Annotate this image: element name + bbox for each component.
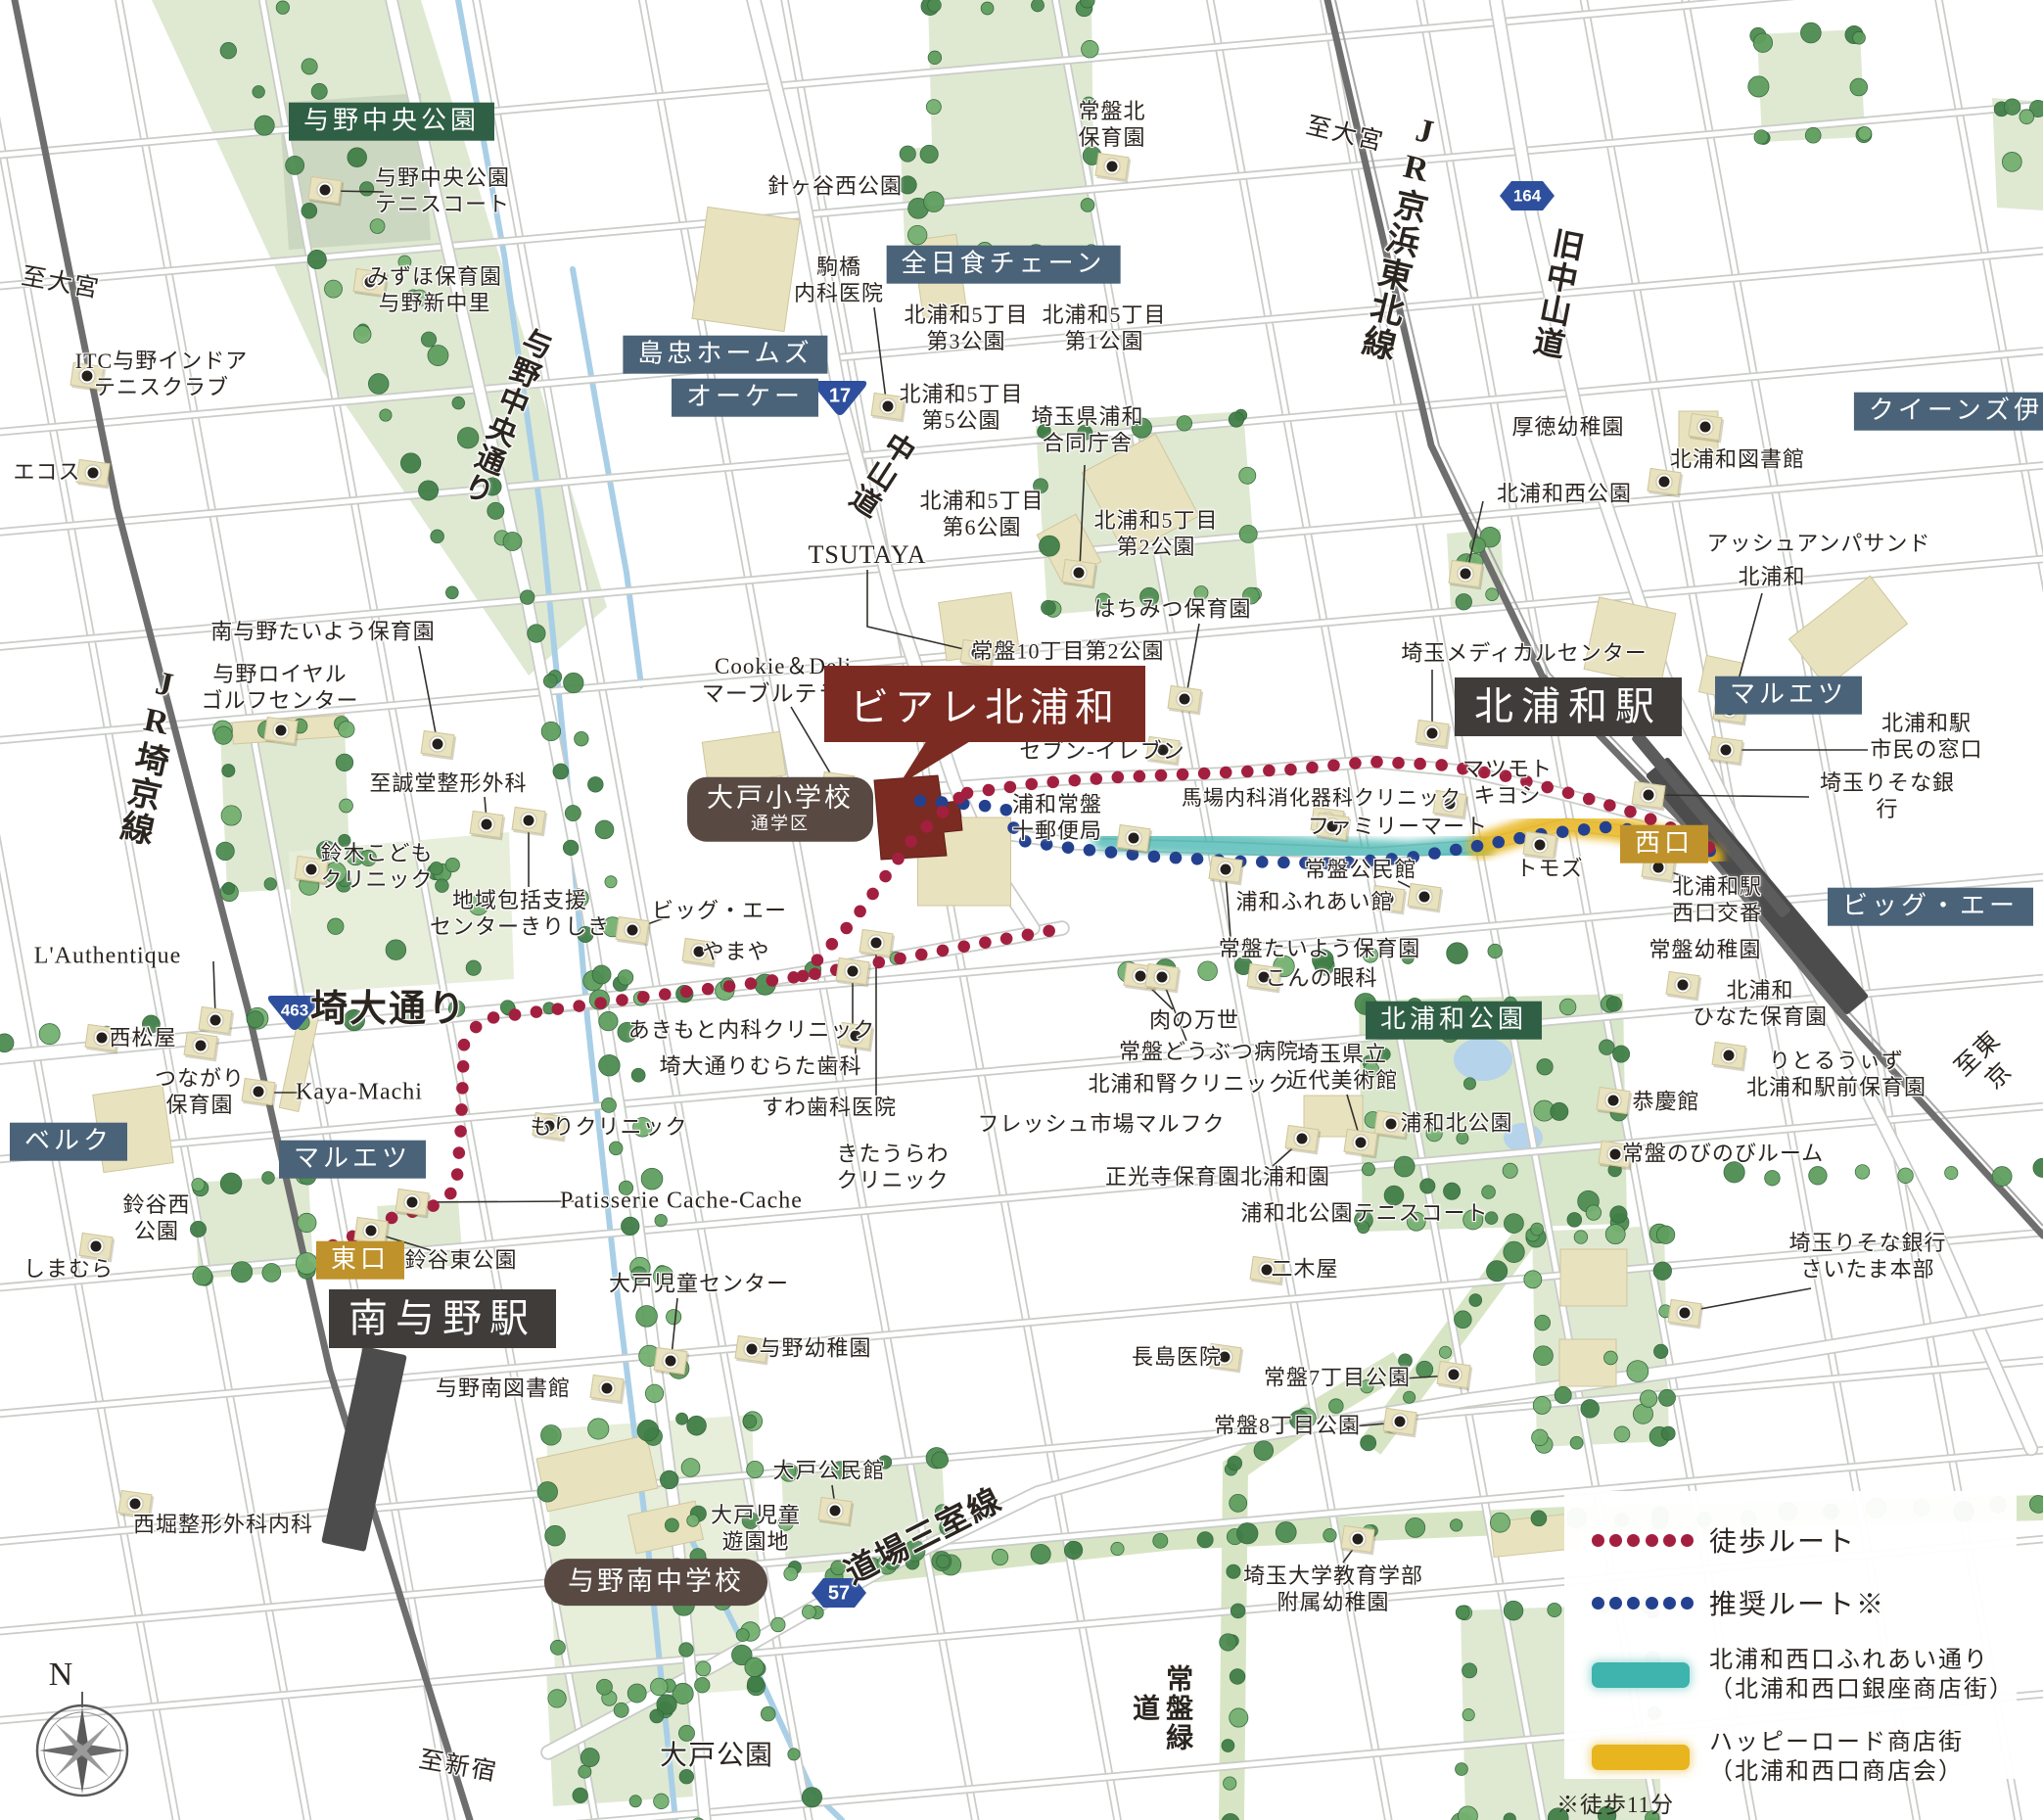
legend-box: 徒歩ルート 推奨ルート※ 北浦和西口ふれあい通り （北浦和西口銀座商店街） ハッ… [1564,1491,2017,1779]
walk-time-note: ※徒歩11分 [1556,1786,1674,1819]
map-label: 埼玉りそな銀行 [1810,770,1966,823]
map-label: はちみつ保育園 [1093,597,1251,624]
recommended-route-sample [1592,1597,1694,1610]
map-label: マツモト キヨシ [1463,757,1553,810]
map-label: 肉の万世 [1149,1008,1239,1035]
road-name-label: 与野中央通り [452,321,556,509]
map-label: 北浦和駅 市民の窓口 [1870,711,1982,764]
map-label: 北浦和腎クリニック [1088,1072,1290,1098]
direction-sign: 至大宮 [19,262,102,305]
road-name-label: 埼大通り [310,987,467,1032]
map-label: 大戸児童 遊園地 [711,1503,801,1556]
map-badge: 全日食チェーン [887,246,1121,284]
map-label: 北浦和5丁目 第6公園 [919,489,1044,541]
map-label: こんの眼科 [1265,966,1377,993]
direction-sign: 至東京 [1949,1025,2029,1105]
map-label: 常盤北 保育園 [1078,99,1145,152]
legend-happyroad-row: ハッピーロード商店街 （北浦和西口商店会） [1592,1728,2017,1787]
map-label: 二木屋 [1271,1257,1338,1283]
map-label: 地域包括支援 センターきりしき [430,888,610,941]
legend-fureai-row: 北浦和西口ふれあい通り （北浦和西口銀座商店街） [1592,1646,2017,1704]
map-label: しまむら [23,1257,114,1283]
legend-fureai-label: 北浦和西口ふれあい通り （北浦和西口銀座商店街） [1709,1646,2015,1704]
map-label: 浦和北公園 [1400,1111,1512,1138]
map-badge: 与野中央公園 [289,103,494,141]
map-label: 埼大通りむらた歯科 [659,1054,861,1081]
map-label: 鈴谷東公園 [404,1248,517,1275]
map-label: 厚徳幼稚園 [1511,415,1624,442]
map-label: 北浦和5丁目 第1公園 [1042,303,1166,355]
map-label: 常盤どうぶつ病院 [1119,1040,1299,1066]
map-label: 埼玉大学教育学部 附属幼稚園 [1243,1563,1423,1616]
map-label: 常盤幼稚園 [1648,938,1761,964]
map-label: アッシュアンパサンド [1707,532,1931,558]
map-label: 北浦和駅 西口交番 [1672,874,1762,927]
map-label: 大戸公民館 [772,1459,885,1485]
walk-route-sample [1592,1534,1694,1547]
map-badge: オーケー [672,379,818,417]
map-label: セブン-イレブン [1019,739,1184,766]
map-label: 西松屋 [109,1026,176,1052]
road-name-label: 旧中山道 [1525,225,1588,363]
map-badge: 北浦和駅 [1455,677,1682,736]
map-label: 至誠堂整形外科 [369,771,527,798]
legend-walk-row: 徒歩ルート [1592,1520,2017,1560]
map-canvas: 1746357164 至大宮与野中央公園与野中央公園 テニスコートみずほ保育園 … [0,0,2043,1820]
map-label: 北浦和5丁目 第3公園 [904,303,1028,355]
map-label: 西堀整形外科内科 [133,1513,313,1539]
map-label: やまや [702,940,769,966]
map-label: フレッシュ市場マルフク [977,1112,1225,1139]
map-label: あきもと内科クリニック [628,1018,876,1045]
map-label: すわ歯科医院 [762,1096,897,1122]
map-label: 常盤のびのびルーム [1622,1142,1824,1168]
direction-sign: 至大宮 [1303,112,1387,159]
map-label: 鈴谷西 公園 [122,1192,190,1245]
map-label: 埼玉県立 近代美術館 [1285,1042,1398,1095]
north-label: N [49,1657,73,1694]
happy-road-sample [1592,1745,1690,1770]
legend-walk-label: 徒歩ルート [1709,1520,1856,1560]
map-badge: 大戸小学校通学区 [687,777,873,842]
map-badge: マルエツ [1715,677,1862,715]
map-label: みずほ保育園 与野新中里 [367,264,502,317]
road-name-label: 道場三室線 [839,1480,1009,1593]
map-label: りとるうぃず 北浦和駅前保育園 [1746,1049,1927,1101]
map-label: 北浦和西公園 [1497,482,1632,508]
map-label: 北浦和 [1738,565,1805,591]
map-label: トモズ [1515,857,1583,883]
map-label: 駒橋 内科医院 [794,255,884,307]
map-label: 恭慶館 [1632,1090,1699,1116]
map-label: もりクリニック [530,1115,687,1142]
map-label: 大戸児童センター [609,1272,789,1298]
map-label: 浦和常盤 十郵便局 [1012,792,1102,845]
map-badge: マルエツ [279,1141,426,1179]
map-label: 埼玉メディカルセンター [1401,641,1647,668]
map-label: 常盤8丁目公園 [1214,1414,1361,1440]
road-name-label: JR埼京線 [110,663,187,850]
map-badge: 北浦和公園 [1366,1002,1542,1040]
map-label: 大戸公園 [660,1740,773,1773]
legend-recommended-label: 推奨ルート※ [1709,1583,1885,1622]
map-badge: 南与野駅 [329,1289,556,1348]
badge-main-label: 大戸小学校 [707,783,854,813]
map-label: エコス [13,460,80,487]
map-badge: 島忠ホームズ [623,336,827,374]
map-label: 埼玉県浦和 合同庁舎 [1031,404,1143,457]
map-label: 常盤10丁目第2公園 [971,639,1164,666]
direction-sign: 至新宿 [416,1746,499,1789]
road-name-label: 中山道 [839,424,920,522]
map-label: 与野ロイヤル ゴルフセンター [201,662,358,715]
map-label: 与野南図書館 [436,1377,571,1403]
map-badge: 与野南中学校 [544,1559,767,1606]
map-badge: クイーンズ伊勢丹 [1854,393,2043,431]
map-badge: 東口 [316,1241,404,1280]
map-badge: ビッグ・エー [1828,888,2033,926]
map-badge: 西口 [1620,825,1708,863]
map-label: きたうらわ クリニック [836,1142,949,1194]
map-label: 鈴木こども クリニック [320,841,433,894]
map-label: 埼玉りそな銀行 さいたま本部 [1788,1231,1946,1283]
property-banner: ビアレ北浦和 [824,666,1145,742]
road-name-label: 常盤緑道 [1127,1653,1193,1764]
map-label: 常盤7丁目公園 [1264,1366,1411,1392]
map-badge: ベルク [10,1123,127,1161]
map-label: TSUTAYA [809,539,927,571]
map-label: 浦和北公園テニスコート [1240,1201,1488,1228]
map-label: 常盤公民館 [1304,858,1416,884]
map-label: 与野中央公園 テニスコート [375,165,510,218]
map-label: 馬場内科消化器科クリニック [1182,786,1462,812]
map-label: 北浦和 ひなた保育園 [1693,978,1828,1031]
legend-happyroad-label: ハッピーロード商店街 （北浦和西口商店会） [1709,1728,1964,1787]
legend-recommended-row: 推奨ルート※ [1592,1583,2017,1622]
map-label: 北浦和5丁目 第5公園 [899,382,1023,435]
fureai-street-sample [1592,1662,1690,1688]
map-label: つながり 保育園 [155,1066,245,1119]
badge-sub-label: 通学区 [707,814,854,833]
map-label: L'Authentique [34,942,182,970]
map-label: 浦和ふれあい館 [1235,890,1393,916]
map-label: 常盤たいよう保育園 [1219,937,1421,963]
map-label: 南与野たいよう保育園 [210,620,436,646]
map-label: ITC与野インドア テニスクラブ [75,349,248,401]
map-label: 与野幼稚園 [759,1336,871,1363]
map-label: 長島医院 [1132,1345,1222,1372]
map-label: 針ヶ谷西公園 [767,174,903,201]
map-label: Patisserie Cache-Cache [560,1187,803,1215]
compass-rose [22,1653,143,1819]
map-label: 正光寺保育園北浦和園 [1105,1165,1330,1191]
map-label: 北浦和5丁目 第2公園 [1093,508,1218,561]
map-label: ファミリーマート [1308,815,1488,841]
map-label: ビッグ・エー [652,899,787,925]
map-label: Kaya-Machi [296,1078,423,1106]
map-label: 北浦和図書館 [1670,447,1805,474]
